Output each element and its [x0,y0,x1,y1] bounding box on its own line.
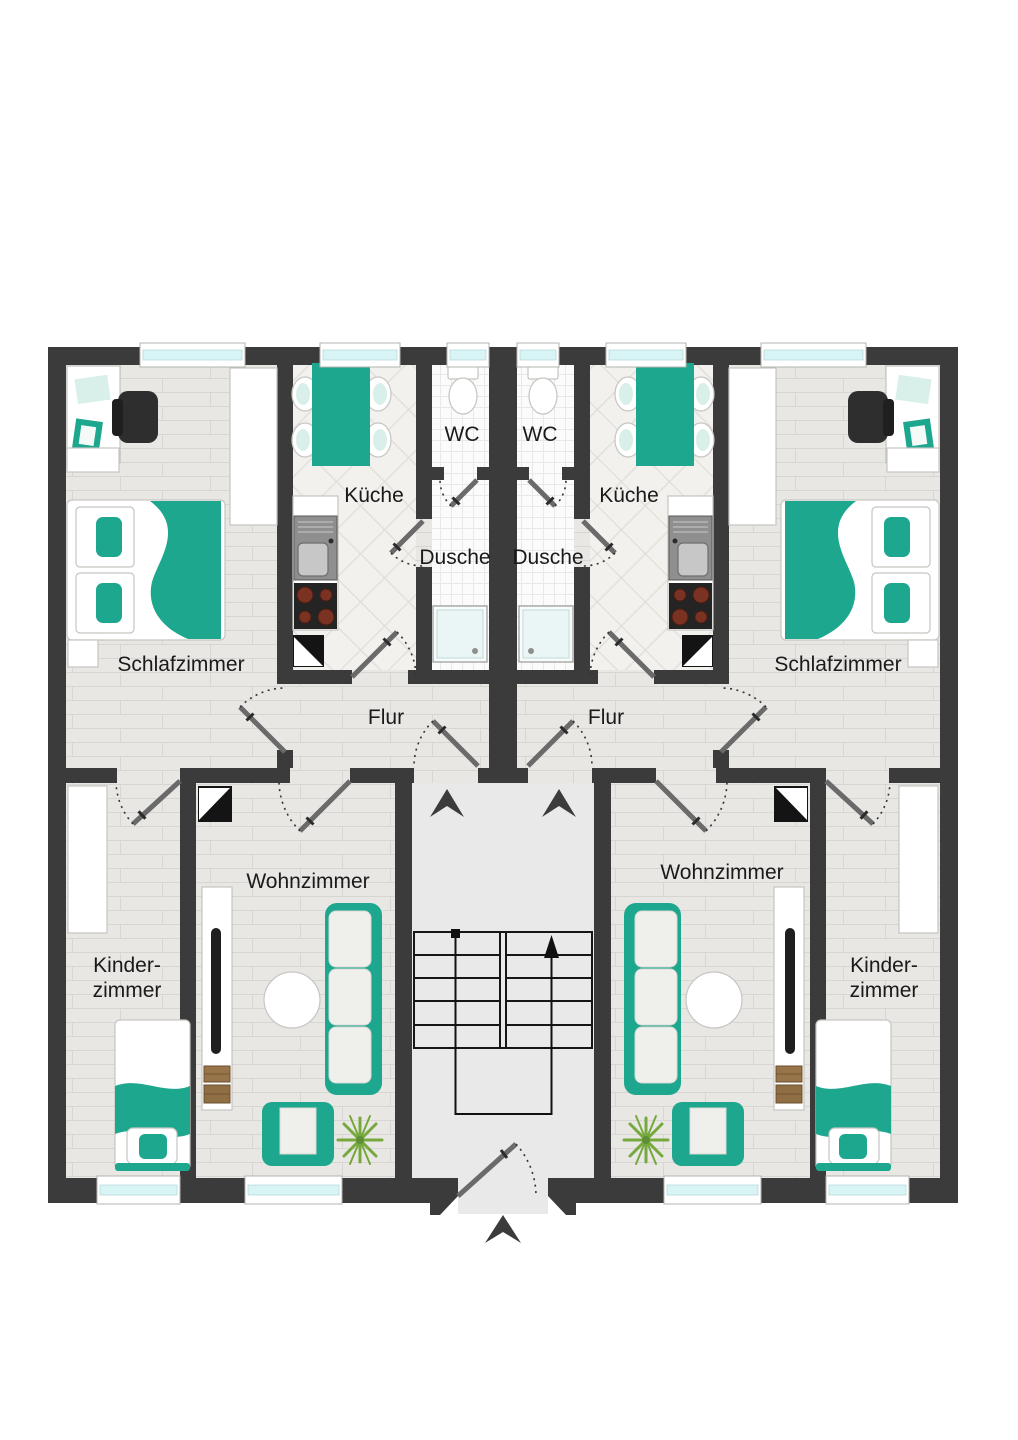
bedroom-nightstand [68,640,98,667]
living-sofa [325,903,382,1095]
living-armchair [262,1102,334,1166]
bedroom-dresser [67,448,119,472]
room-label-kinderzimmer-left-2: zimmer [93,979,162,1002]
kids-wardrobe [68,786,107,933]
room-label-flur-right: Flur [588,706,624,729]
shaft-icon-living-left [198,786,232,822]
bedroom-wardrobe [230,368,277,525]
stairwell-floor-left [412,783,503,1178]
room-label-flur-left: Flur [368,706,404,729]
tv [211,928,221,1054]
plant [338,1116,382,1164]
bedroom-double-bed [67,500,225,640]
stair-walkline-start [451,929,460,938]
kids-bed [115,1020,190,1171]
living-coffee-table [264,972,320,1028]
room-label-schlafzimmer-left: Schlafzimmer [117,653,244,676]
building-entrance-arrow-icon [485,1215,521,1243]
room-label-wc-left: WC [445,423,480,446]
room-label-wohnzimmer-right: Wohnzimmer [660,861,783,884]
toilet [448,366,478,414]
room-label-kueche-right: Küche [599,484,659,507]
apartment-right [503,343,958,1215]
bedroom-chair [112,391,158,443]
floor-plan-svg: Schlafzimmer Küche WC Dusche Flur Wohnzi… [0,0,1018,1440]
kitchen-stove [294,583,337,629]
room-label-kinderzimmer-right-2: zimmer [850,979,919,1002]
porch-floor-left [458,1178,503,1214]
apartment-left [48,343,503,1215]
room-label-schlafzimmer-right: Schlafzimmer [774,653,901,676]
room-label-wc-right: WC [523,423,558,446]
room-label-wohnzimmer-left: Wohnzimmer [246,870,369,893]
room-label-kueche-left: Küche [344,484,404,507]
room-label-kinderzimmer-right-1: Kinder- [850,954,918,977]
room-label-kinderzimmer-left-1: Kinder- [93,954,161,977]
living-sideboard [202,887,232,1110]
room-label-dusche-right: Dusche [512,546,583,569]
floor-plan: Schlafzimmer Küche WC Dusche Flur Wohnzi… [0,0,1018,1440]
shower-tray [433,606,487,662]
shaft-icon-kitchen-left [293,635,324,667]
room-label-dusche-left: Dusche [419,546,490,569]
